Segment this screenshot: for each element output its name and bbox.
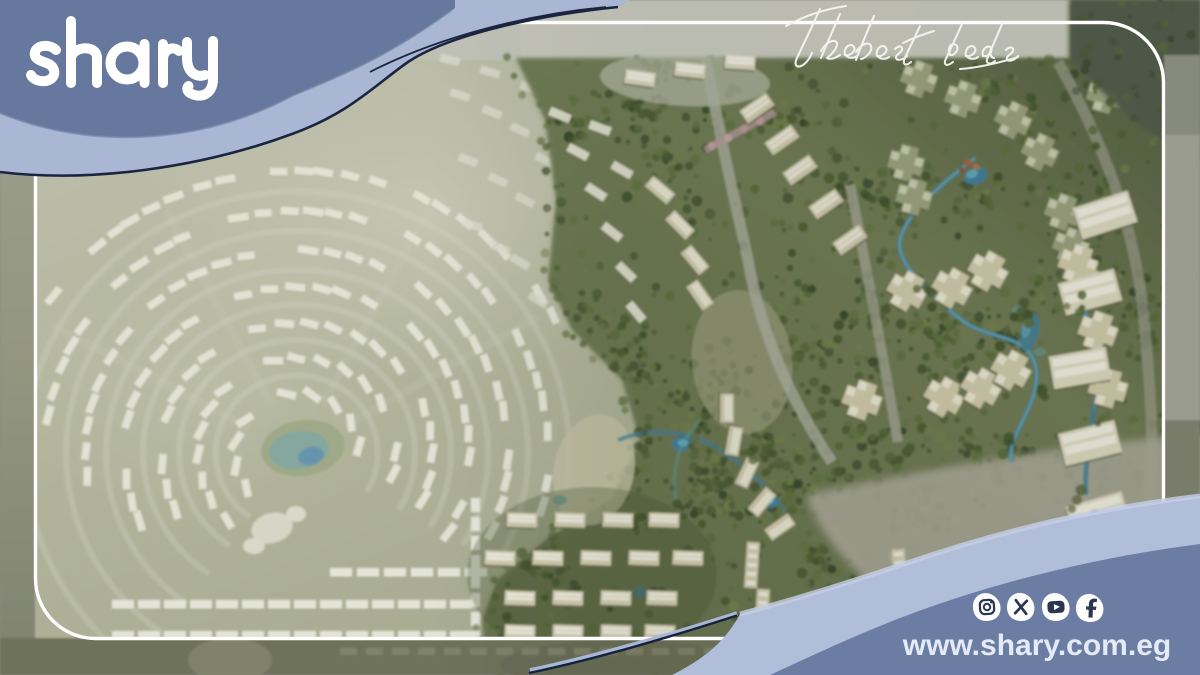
svg-text:www.shary.com.eg: www.shary.com.eg: [902, 629, 1171, 662]
